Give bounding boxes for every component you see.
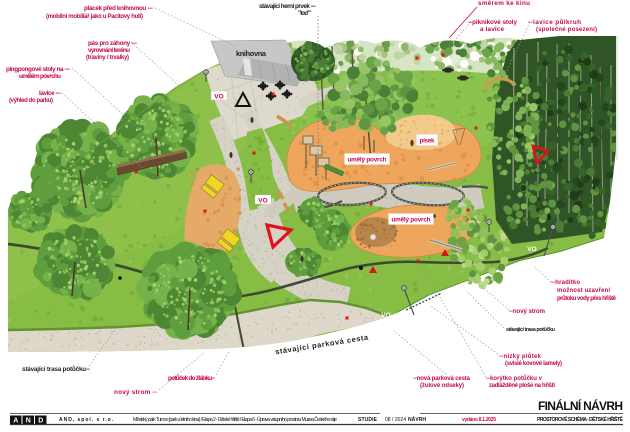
svg-text:PROSTOROVÉ SCHÉMA - DĚTSKÉ HŘI: PROSTOROVÉ SCHÉMA - DĚTSKÉ HŘIŠTĚ xyxy=(537,415,624,423)
svg-text:"loď": "loď" xyxy=(298,10,311,17)
svg-text:VO: VO xyxy=(258,198,267,205)
svg-text:pingpongové stoly na ---: pingpongové stoly na --- xyxy=(6,66,70,73)
svg-text:umělém povrchu: umělém povrchu xyxy=(19,73,61,80)
svg-text:průtoku vody přes hřiště: průtoku vody přes hřiště xyxy=(557,295,617,302)
svg-text:plácek před knihovnou ---: plácek před knihovnou --- xyxy=(84,5,153,12)
svg-text:--korýtko potůčku v: --korýtko potůčku v xyxy=(486,375,543,382)
svg-text:--nový strom: --nový strom xyxy=(509,309,545,315)
svg-text:písek: písek xyxy=(420,138,435,145)
svg-text:nový strom --: nový strom -- xyxy=(114,389,157,396)
svg-text:stávající trasa potůčku--: stávající trasa potůčku-- xyxy=(22,365,90,373)
svg-text:STUDIE: STUDIE xyxy=(358,417,378,423)
svg-text:D: D xyxy=(38,418,43,425)
svg-text:(mobilní mobiliář jako u Pacit: (mobilní mobiliář jako u Pacitovy huti) xyxy=(46,14,143,20)
svg-text:a lavice: a lavice xyxy=(480,26,504,33)
svg-text:VO: VO xyxy=(214,94,223,101)
svg-text:(výhled do parku): (výhled do parku) xyxy=(9,98,53,104)
svg-text:potůček do žlábku--: potůček do žlábku-- xyxy=(168,374,215,382)
svg-text:umělý povrch: umělý povrch xyxy=(392,217,431,224)
svg-text:(žulové odseky): (žulové odseky) xyxy=(420,383,464,389)
svg-text:--lavice půlkruh: --lavice půlkruh xyxy=(528,18,581,26)
svg-text:A: A xyxy=(13,418,18,425)
svg-text:vydáno 8.1.2025: vydáno 8.1.2025 xyxy=(462,417,496,423)
svg-text:FINÁLNÍ NÁVRH: FINÁLNÍ NÁVRH xyxy=(538,398,623,413)
svg-text:NÁVRH: NÁVRH xyxy=(408,416,426,423)
svg-text:umělý povrch: umělý povrch xyxy=(348,157,387,164)
svg-text:--nízký plůtek: --nízký plůtek xyxy=(499,353,542,360)
svg-text:vyrovnání terénu: vyrovnání terénu xyxy=(88,47,130,54)
svg-text:VO: VO xyxy=(381,312,390,319)
svg-text:pás pro záhony ---: pás pro záhony --- xyxy=(88,40,137,47)
svg-text:zadlážděné ploše na hřišti: zadlážděné ploše na hřišti xyxy=(489,383,555,389)
svg-text:stávající herní prvek ---: stávající herní prvek --- xyxy=(259,3,316,10)
svg-text:(svislé kovové lamely): (svislé kovové lamely) xyxy=(505,361,562,367)
svg-text:směrem ke kinu: směrem ke kinu xyxy=(478,0,530,7)
svg-text:08 / 2024: 08 / 2024 xyxy=(385,417,406,423)
svg-text:--piknikové stoly: --piknikové stoly xyxy=(468,19,517,26)
svg-text:Městský park Turnov (park u le: Městský park Turnov (park u letního kina… xyxy=(133,416,337,423)
svg-text:--hradítko: --hradítko xyxy=(551,280,580,286)
svg-text:AND, spol. s r.o.: AND, spol. s r.o. xyxy=(59,417,114,423)
svg-text:knihovna: knihovna xyxy=(236,49,267,58)
svg-text:--nová parková cesta: --nová parková cesta xyxy=(413,376,471,382)
svg-text:N: N xyxy=(26,418,31,425)
svg-text:stávající trasa potůčku: stávající trasa potůčku xyxy=(506,326,555,333)
svg-text:(společné posezení): (společné posezení) xyxy=(536,27,597,33)
svg-text:lavice ---: lavice --- xyxy=(39,90,61,97)
svg-text:možnost uzavření: možnost uzavření xyxy=(557,288,610,294)
svg-text:VO: VO xyxy=(527,246,536,253)
svg-text:(traviny / trvalky): (traviny / trvalky) xyxy=(86,55,129,61)
